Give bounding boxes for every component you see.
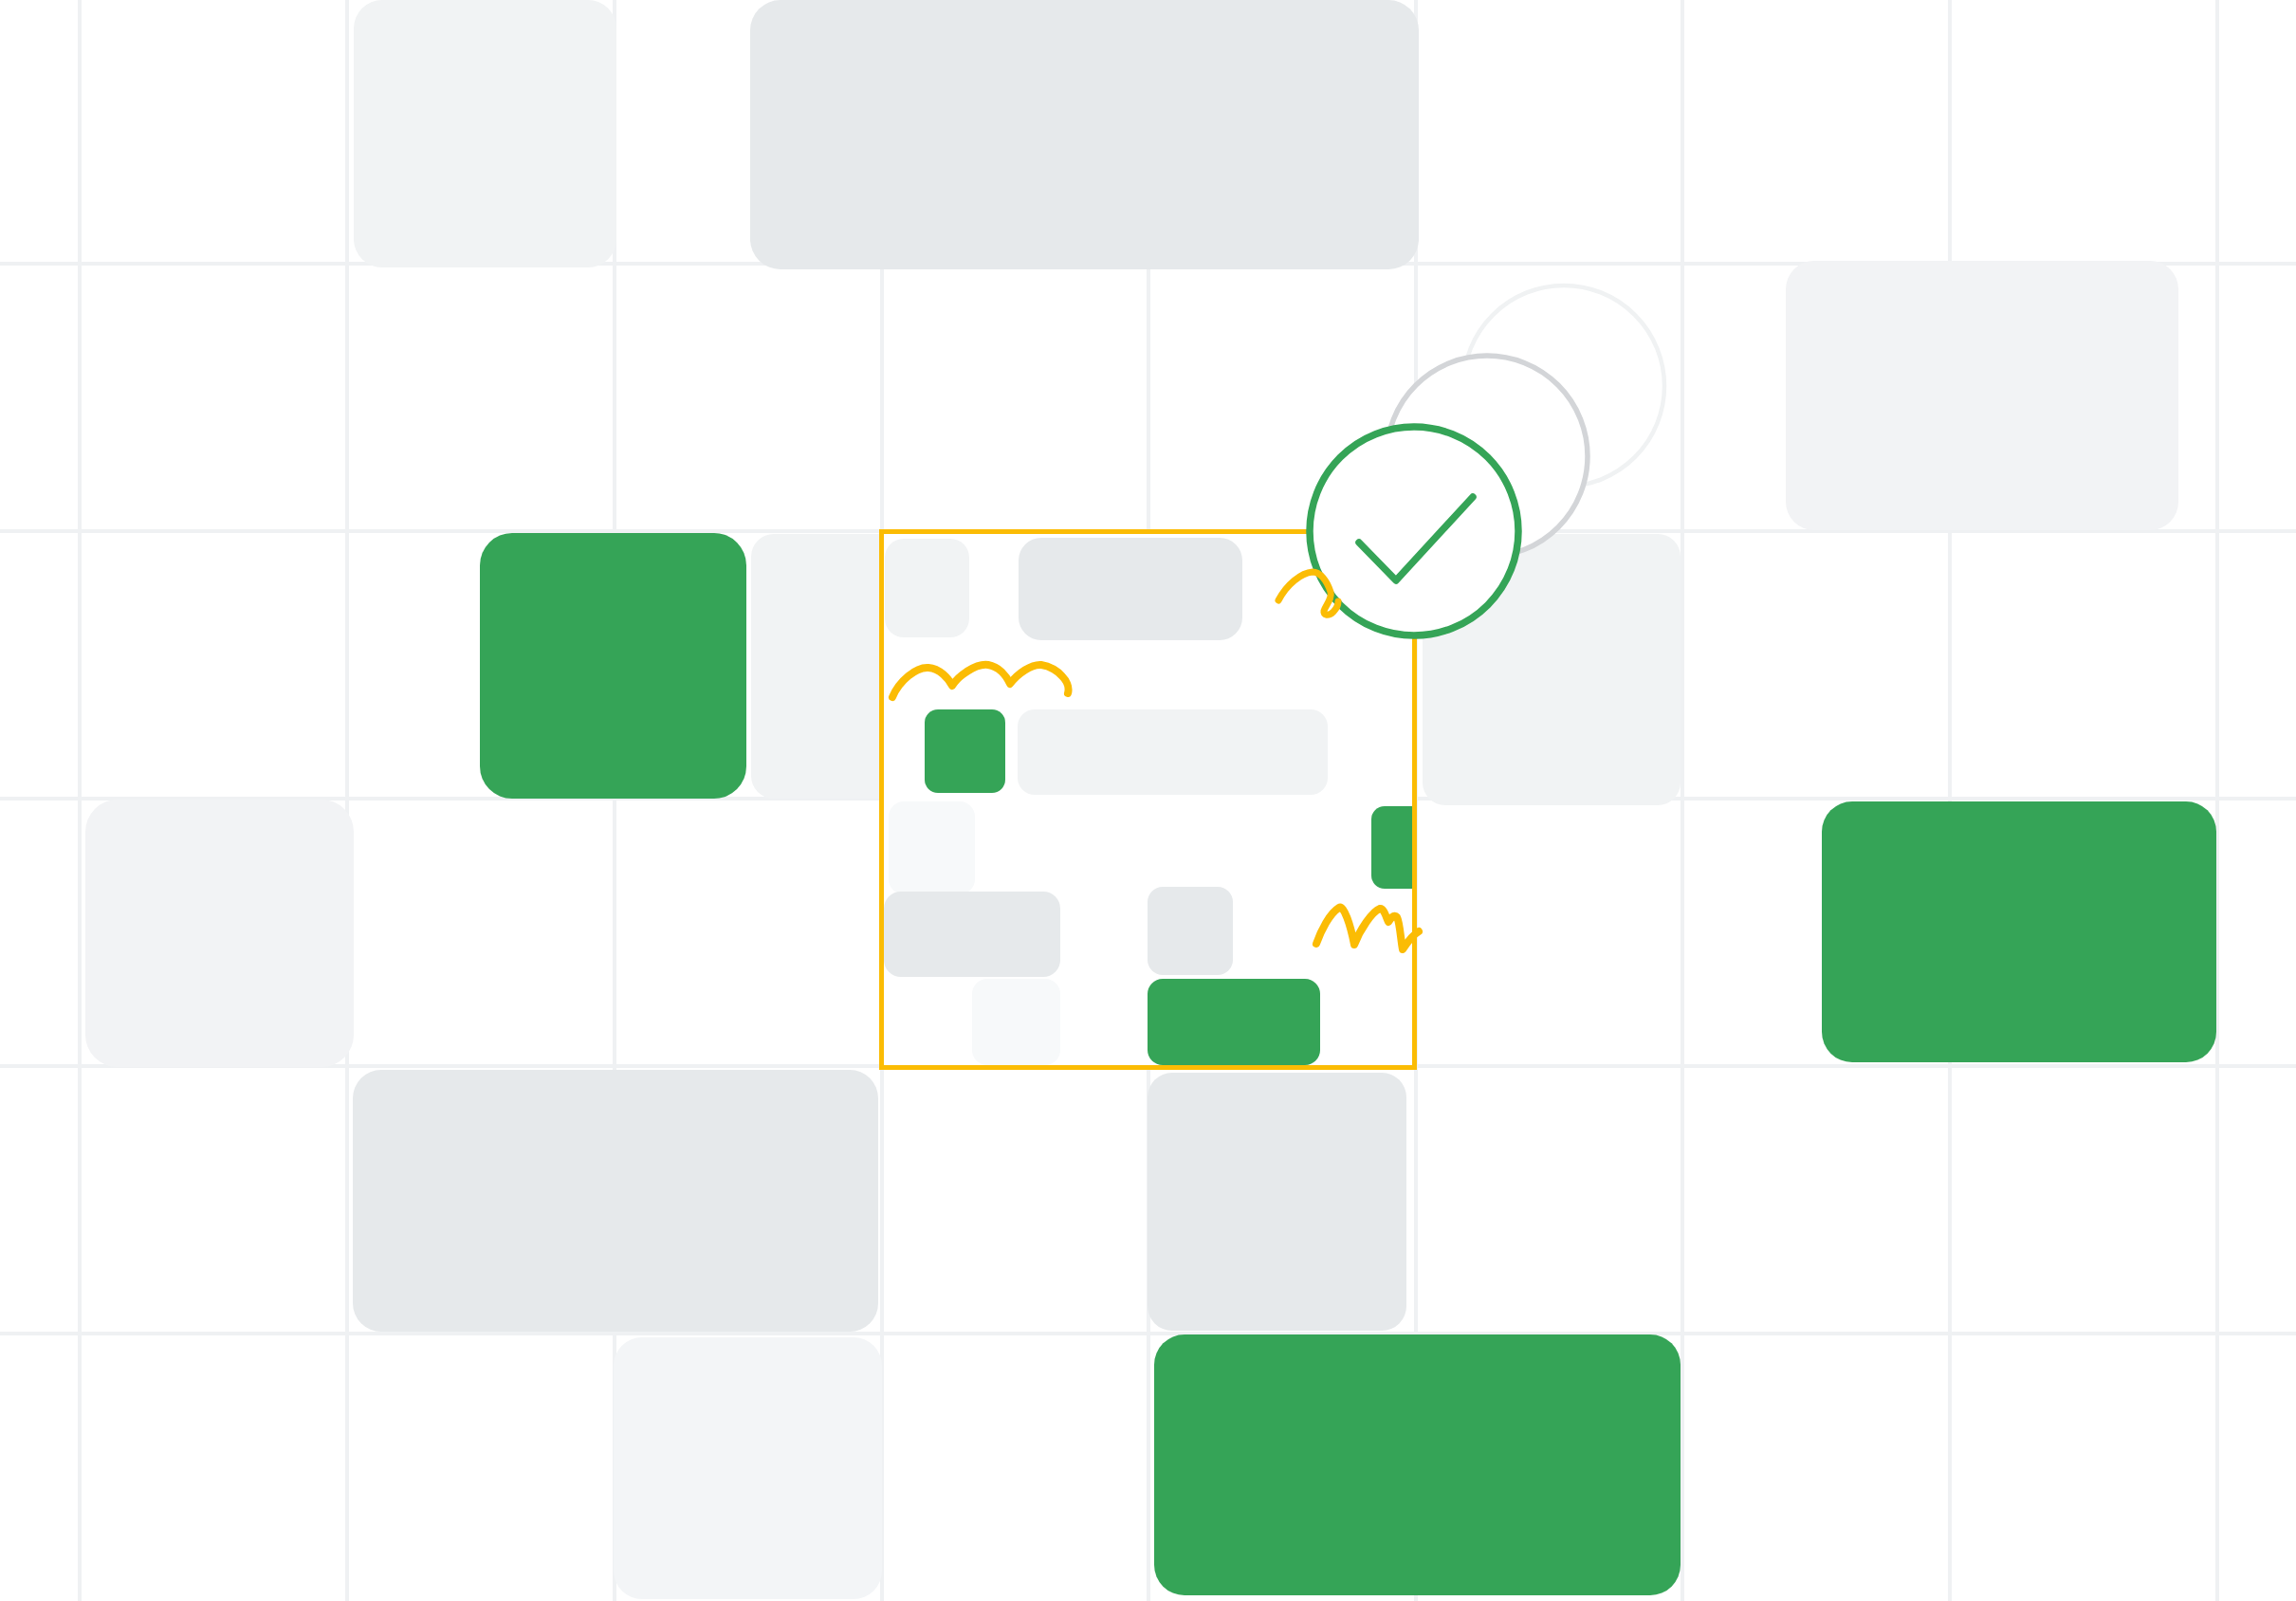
illustration-stage — [0, 0, 2296, 1601]
badge-and-scribbles-layer — [0, 0, 2296, 1601]
scribble-card-bottom — [1316, 908, 1419, 949]
scribble-card-main — [892, 665, 1069, 697]
